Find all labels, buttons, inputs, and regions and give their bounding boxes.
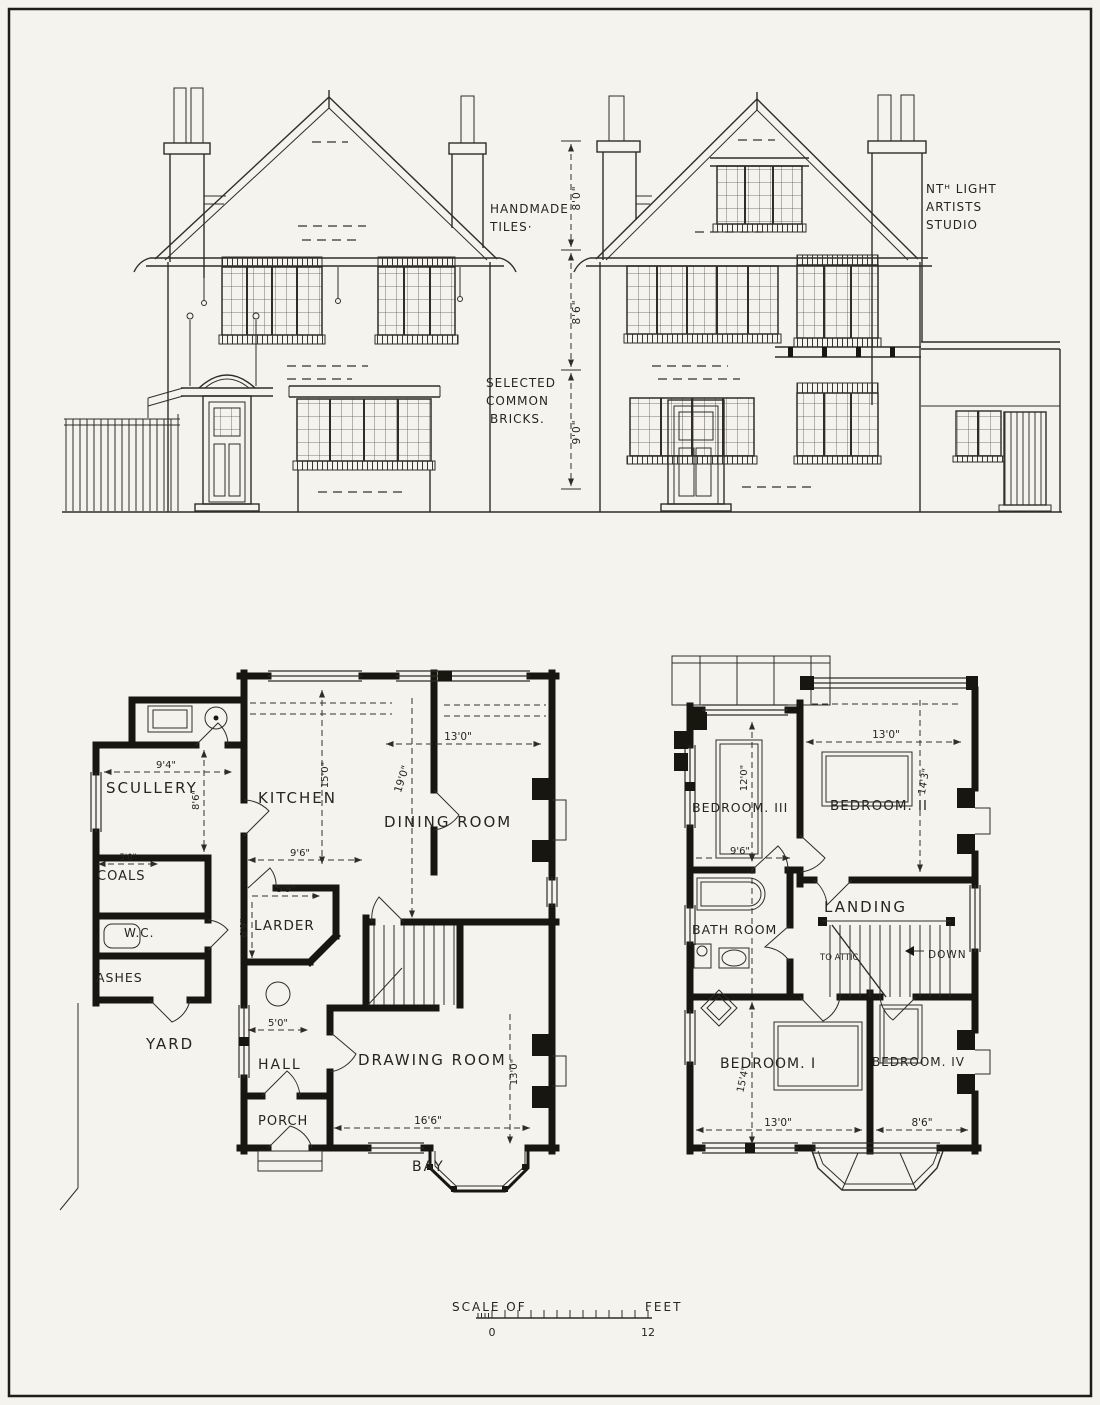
room-label-wc: W.C. (124, 926, 155, 940)
dim-bedroom3-width: 9'6" (730, 846, 750, 857)
house-plans-and-elevations: 8'0" 8'6" 9'0" HANDMADE TILES· SELECTED … (0, 0, 1100, 1405)
casement-window (375, 257, 458, 344)
dim-bedroom2-width: 13'0" (872, 729, 900, 741)
dim-scullery-width: 9'4" (156, 760, 176, 771)
plan-walls (96, 673, 556, 1151)
yard-boundary (60, 1003, 78, 1210)
scale-end-value: 12 (641, 1326, 655, 1339)
fireplace (957, 788, 990, 854)
storey-dim-ground: 9'0" (571, 419, 583, 444)
architectural-drawing-sheet: 8'0" 8'6" 9'0" HANDMADE TILES· SELECTED … (0, 0, 1100, 1405)
room-label-drawing-room: DRAWING ROOM (358, 1051, 507, 1069)
note-line: NTᴴ LIGHT (926, 182, 997, 196)
note-north-light-artists-studio: NTᴴ LIGHT ARTISTS STUDIO (926, 182, 997, 232)
room-label-bathroom: BATH ROOM (692, 922, 777, 937)
scale-label-suffix: FEET (645, 1300, 682, 1314)
front-elevation (64, 88, 516, 512)
garden-gate (1004, 412, 1046, 505)
note-line: TILES· (489, 220, 533, 234)
dim-bedroom4-width: 8'6" (911, 1117, 932, 1129)
dim-larder-depth: 6'9" (239, 918, 250, 937)
chimney-breast (674, 753, 688, 771)
room-label-yard: YARD (145, 1035, 194, 1053)
note-line: BRICKS. (490, 412, 545, 426)
ground-floor-plan: 9'4" 8'6" 15'0" 9'6" 13'0" 19'0" 5'0" 5'… (60, 671, 566, 1210)
corner-pier (691, 712, 707, 730)
note-line: HANDMADE (490, 202, 569, 216)
dim-kitchen-length: 15'0" (320, 762, 331, 788)
room-label-coals: COALS (97, 869, 145, 884)
chimney-breast (674, 731, 688, 749)
hall-cylinder (266, 982, 290, 1006)
room-label-ashes: ASHES (96, 970, 143, 985)
storey-dim-attic: 8'0" (571, 185, 583, 210)
room-label-dining-room: DINING ROOM (384, 813, 512, 831)
room-label-bedroom4: BEDROOM. IV (872, 1055, 965, 1069)
bed (716, 740, 762, 858)
front-door (148, 375, 273, 511)
note-line: ARTISTS (926, 200, 982, 214)
dim-bedroom1-width: 13'0" (764, 1117, 792, 1129)
room-label-kitchen: KITCHEN (258, 789, 337, 807)
dim-coals-width: 5'0" (119, 853, 136, 863)
string-course (775, 347, 921, 357)
note-line: STUDIO (926, 218, 978, 232)
rear-elevation (574, 92, 1060, 512)
dim-kitchen-width: 9'6" (290, 848, 310, 859)
note-line: COMMON (486, 394, 549, 408)
scale-label-prefix: SCALE OF (452, 1300, 527, 1314)
first-floor-plan: TO ATTIC DOWN (672, 656, 990, 1190)
chimney (868, 95, 926, 405)
casement-window (794, 255, 881, 347)
casement-window (219, 257, 325, 344)
dim-hall-width: 5'0" (268, 1018, 288, 1029)
room-label-scullery: SCULLERY (106, 779, 198, 797)
bay-window (289, 386, 440, 512)
gable-window (710, 158, 809, 232)
room-label-bedroom3: BEDROOM. III (692, 800, 788, 815)
bay-roof-plan (812, 1151, 943, 1190)
note-selected-common-bricks: SELECTED COMMON BRICKS. (486, 376, 556, 426)
staircase (368, 925, 454, 1005)
fence (64, 414, 180, 511)
dim-larder-width: 5'9" (276, 884, 295, 895)
scale-start-value: 0 (489, 1326, 496, 1339)
note-line: SELECTED (486, 376, 556, 390)
room-label-bedroom1: BEDROOM. I (720, 1056, 816, 1072)
room-label-bedroom2: BEDROOM. II (830, 798, 928, 814)
chimney (449, 96, 486, 248)
dim-bedroom2-depth: 14'3" (917, 768, 932, 796)
stairs-to-attic-label: TO ATTIC (819, 953, 858, 963)
storey-height-dimension: 8'0" 8'6" 9'0" (561, 141, 583, 489)
dim-dining-length: 19'0" (392, 764, 412, 794)
chimney (597, 96, 652, 260)
dim-bedroom3-depth: 12'0" (739, 765, 750, 791)
stairs-down-label: DOWN (928, 949, 967, 961)
room-label-larder: LARDER (254, 918, 315, 934)
studio-window-band (624, 266, 781, 343)
staircase: TO ATTIC DOWN (818, 917, 967, 997)
room-label-hall: HALL (258, 1057, 302, 1073)
room-label-bay: BAY (412, 1159, 445, 1175)
room-label-porch: PORCH (258, 1114, 308, 1129)
dim-drawing-width: 16'6" (414, 1115, 442, 1127)
scullery-fixtures (148, 706, 227, 732)
chimney (164, 88, 226, 278)
storey-dim-first: 8'6" (571, 299, 583, 324)
casement-window (794, 383, 881, 464)
dim-drawing-depth: 13'0" (509, 1059, 520, 1085)
outbuilding (921, 342, 1060, 512)
note-handmade-tiles: HANDMADE TILES· (489, 202, 569, 234)
dim-dining-width: 13'0" (444, 731, 472, 743)
room-label-landing: LANDING (824, 898, 907, 916)
scale-bar: SCALE OF FEET 0 12 (452, 1300, 682, 1339)
